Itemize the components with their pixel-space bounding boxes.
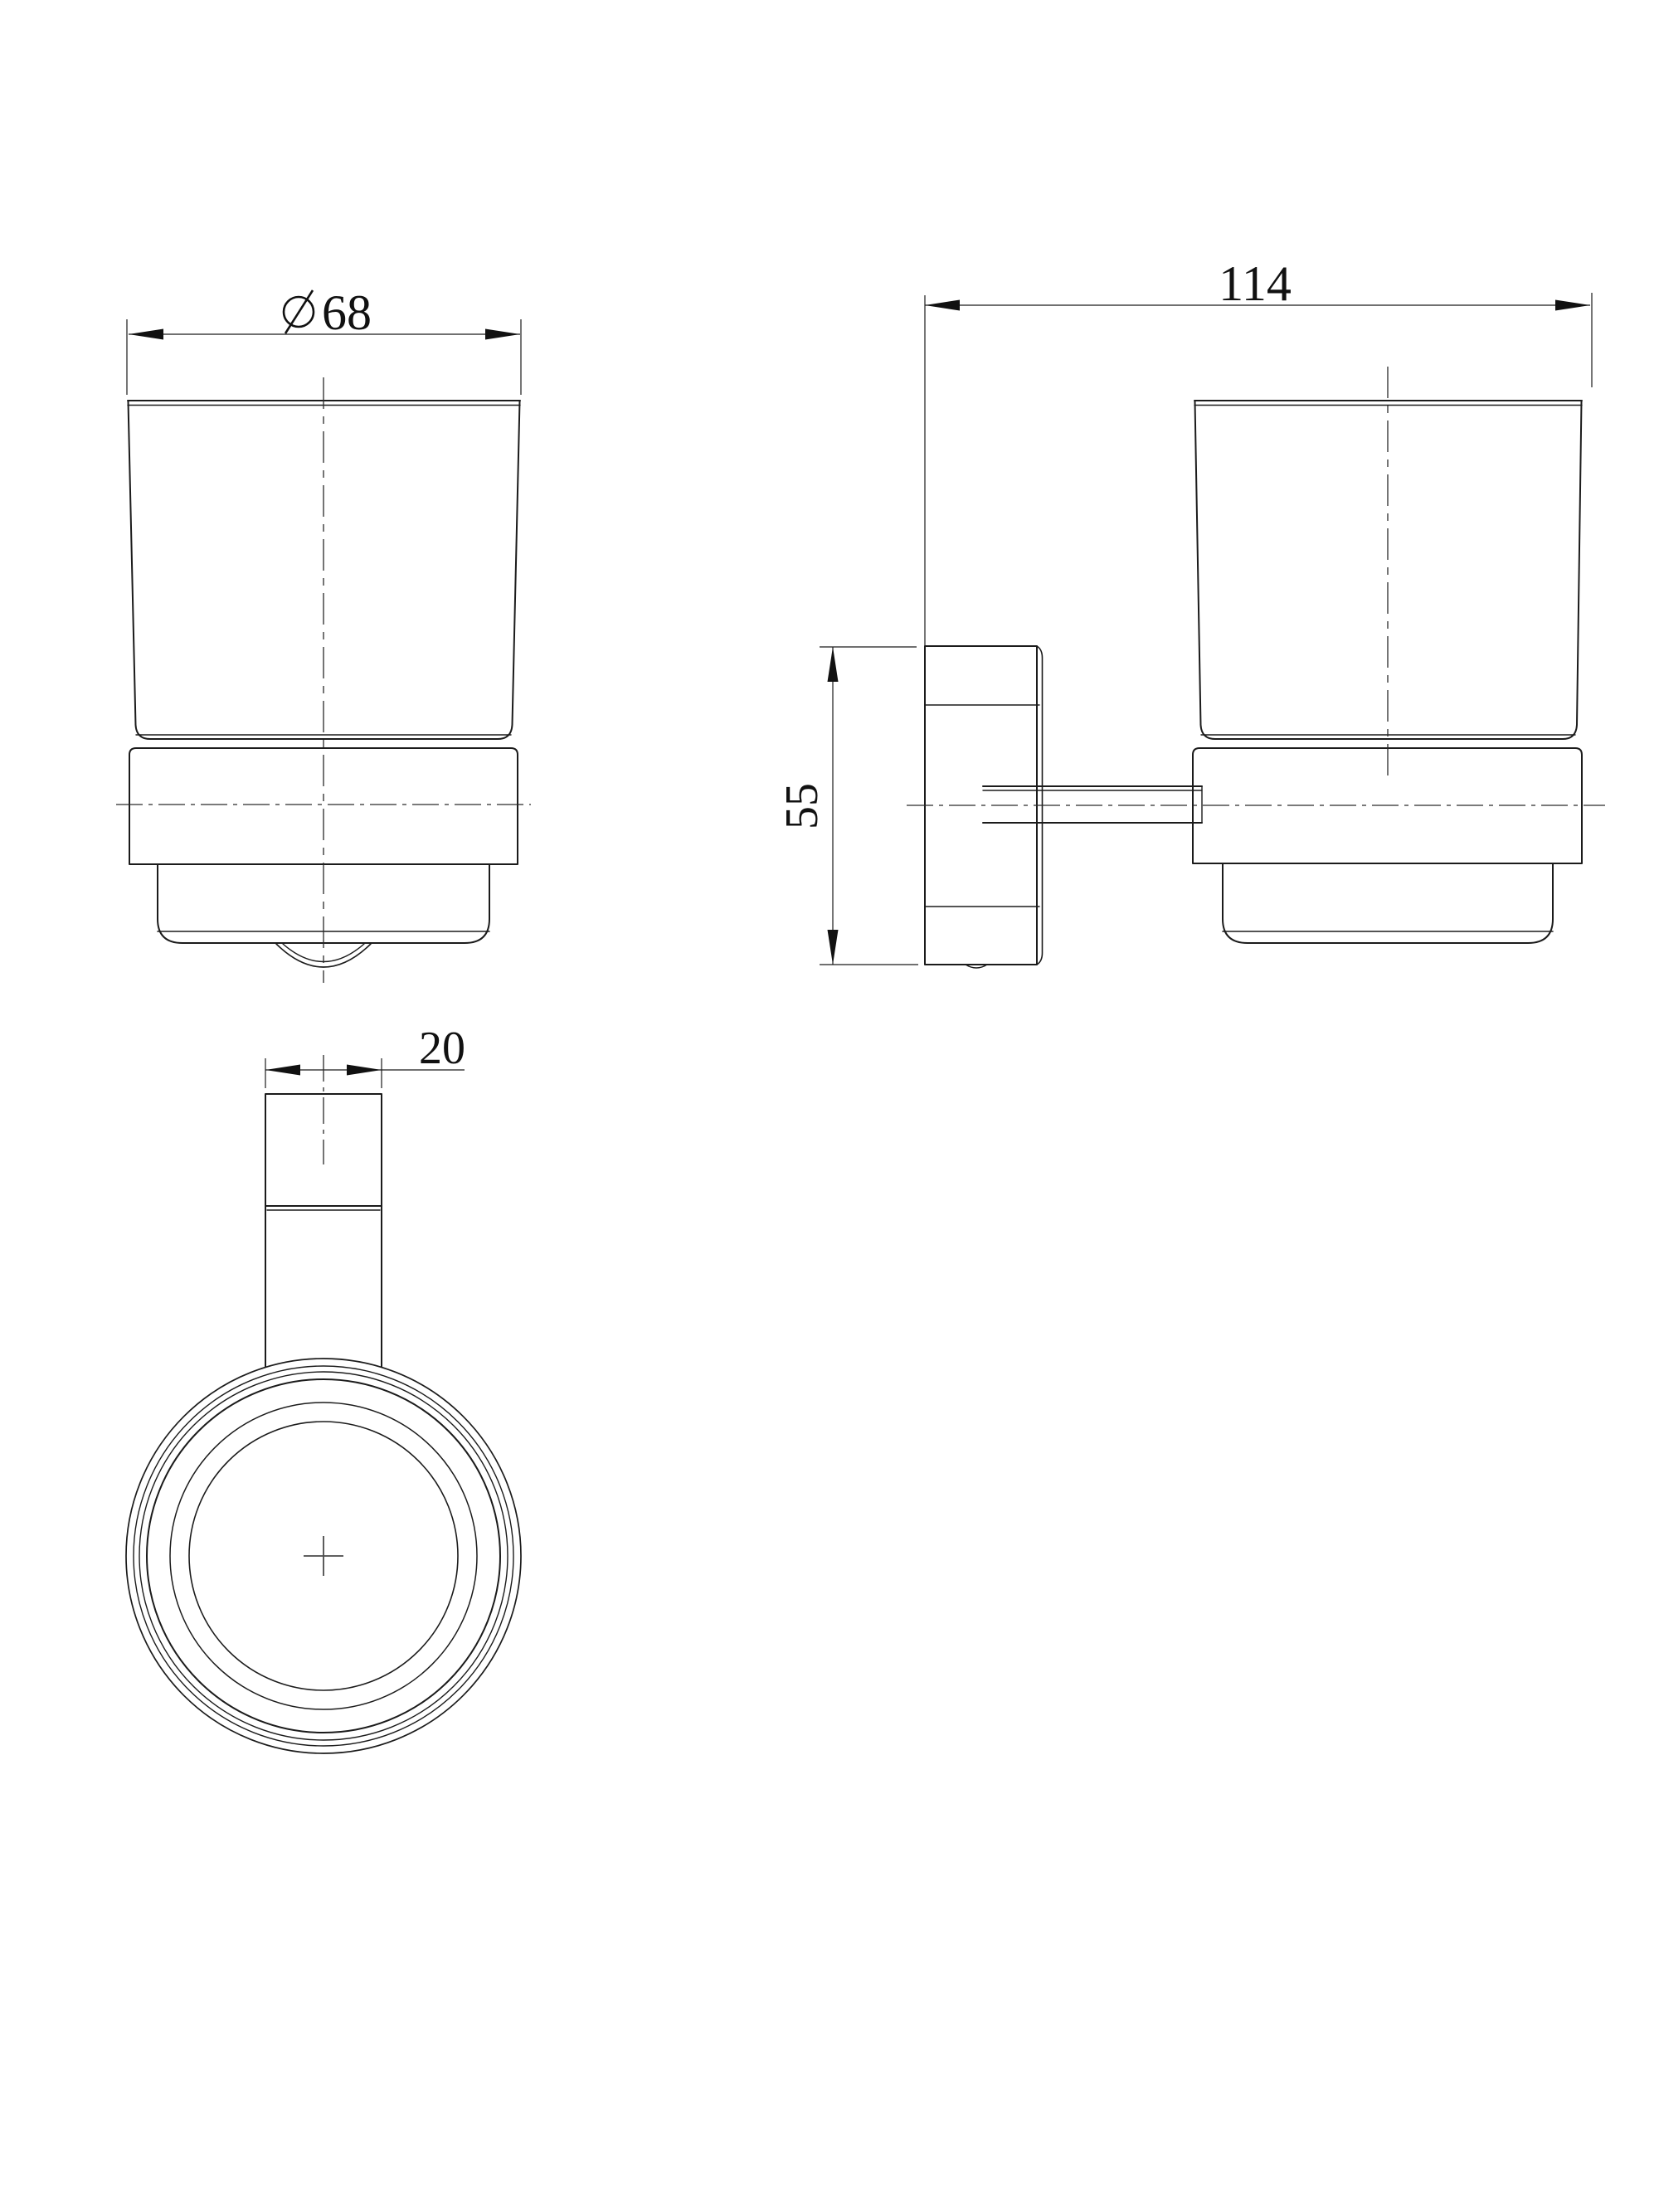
drawing-sheet: 68 114: [0, 0, 1659, 2212]
diameter-symbol: [284, 290, 314, 333]
side-depth-dimension: 114: [925, 256, 1592, 646]
post-outline: [265, 1094, 382, 1367]
support-arm-side: [983, 786, 1202, 823]
mount-post-plan: [265, 1094, 382, 1367]
dimension-value-height: 55: [776, 783, 828, 829]
arrowhead-left: [129, 329, 163, 340]
arrowhead-right: [1555, 300, 1590, 311]
arrowhead-bottom: [828, 930, 839, 965]
side-view: 114 55: [776, 256, 1605, 968]
plan-view: 20: [126, 1023, 521, 1753]
plan-width-dimension: 20: [265, 1023, 465, 1088]
arrowhead-left: [925, 300, 960, 311]
side-height-dimension: 55: [776, 647, 918, 965]
center-mark-cross: [304, 1536, 343, 1576]
technical-drawing-canvas: 68 114: [0, 0, 1659, 2212]
dimension-value-diameter: 68: [322, 285, 372, 340]
arrowhead-right: [347, 1065, 382, 1076]
dimension-value-post-width: 20: [419, 1023, 465, 1074]
arrowhead-right: [485, 329, 520, 340]
arrowhead-top: [828, 647, 839, 682]
holder-base-side: [1223, 863, 1553, 943]
holder-circles-plan: [126, 1359, 521, 1753]
dimension-value-depth: 114: [1219, 256, 1292, 311]
wall-plate-side: [925, 646, 1043, 968]
arrowhead-left: [265, 1065, 300, 1076]
front-view: 68: [116, 285, 531, 983]
